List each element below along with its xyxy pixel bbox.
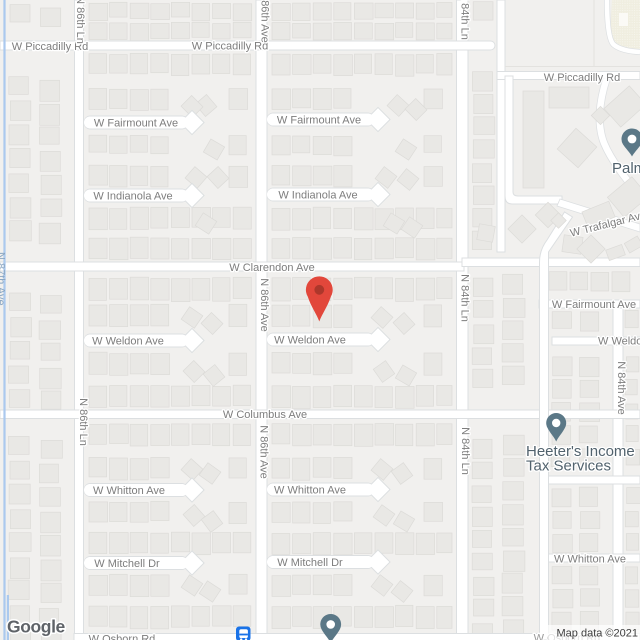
svg-text:N 84th Ln: N 84th Ln xyxy=(459,427,471,475)
svg-text:N 87th Ave: N 87th Ave xyxy=(0,252,7,306)
svg-text:W Whitton Ave: W Whitton Ave xyxy=(554,554,626,566)
svg-text:Map data ©2021: Map data ©2021 xyxy=(557,628,639,640)
svg-text:W Weldon Ave: W Weldon Ave xyxy=(92,335,164,347)
svg-text:W Mitchell Dr: W Mitchell Dr xyxy=(277,557,343,569)
svg-text:N 86th Ln: N 86th Ln xyxy=(74,0,86,44)
svg-text:W Mitchell Dr: W Mitchell Dr xyxy=(94,558,160,570)
svg-text:N 84th Ave: N 84th Ave xyxy=(615,361,627,415)
svg-text:Palma: Palma xyxy=(612,160,640,177)
svg-text:N 86th Ave: N 86th Ave xyxy=(259,0,271,43)
svg-text:W Weldon Ave: W Weldon Ave xyxy=(598,336,640,348)
svg-text:N 86th Ave: N 86th Ave xyxy=(258,278,270,332)
svg-text:N 86th Ave: N 86th Ave xyxy=(258,425,270,479)
svg-text:N 84th Ln: N 84th Ln xyxy=(459,0,471,40)
svg-text:W Piccadilly Rd: W Piccadilly Rd xyxy=(192,41,268,53)
svg-text:W Fairmount Ave: W Fairmount Ave xyxy=(94,117,178,129)
svg-text:Tax Services: Tax Services xyxy=(526,458,611,475)
svg-text:W Whitton Ave: W Whitton Ave xyxy=(93,485,165,497)
svg-text:Google: Google xyxy=(7,617,66,637)
svg-text:W Whitton Ave: W Whitton Ave xyxy=(274,484,346,496)
svg-text:W Fairmount Ave: W Fairmount Ave xyxy=(552,299,636,311)
svg-text:W Fairmount Ave: W Fairmount Ave xyxy=(277,114,361,126)
svg-text:N 84th Ln: N 84th Ln xyxy=(459,274,471,322)
svg-text:W Columbus Ave: W Columbus Ave xyxy=(223,409,307,421)
svg-text:W Piccadilly Rd: W Piccadilly Rd xyxy=(544,72,620,84)
svg-text:W Clarendon Ave: W Clarendon Ave xyxy=(229,262,314,274)
svg-text:W Indianola Ave: W Indianola Ave xyxy=(278,189,357,201)
svg-text:N 86th Ln: N 86th Ln xyxy=(77,398,89,446)
svg-text:W Weldon Ave: W Weldon Ave xyxy=(274,334,346,346)
svg-text:W Osborn Rd: W Osborn Rd xyxy=(89,633,156,640)
svg-text:W Indianola Ave: W Indianola Ave xyxy=(93,190,172,202)
